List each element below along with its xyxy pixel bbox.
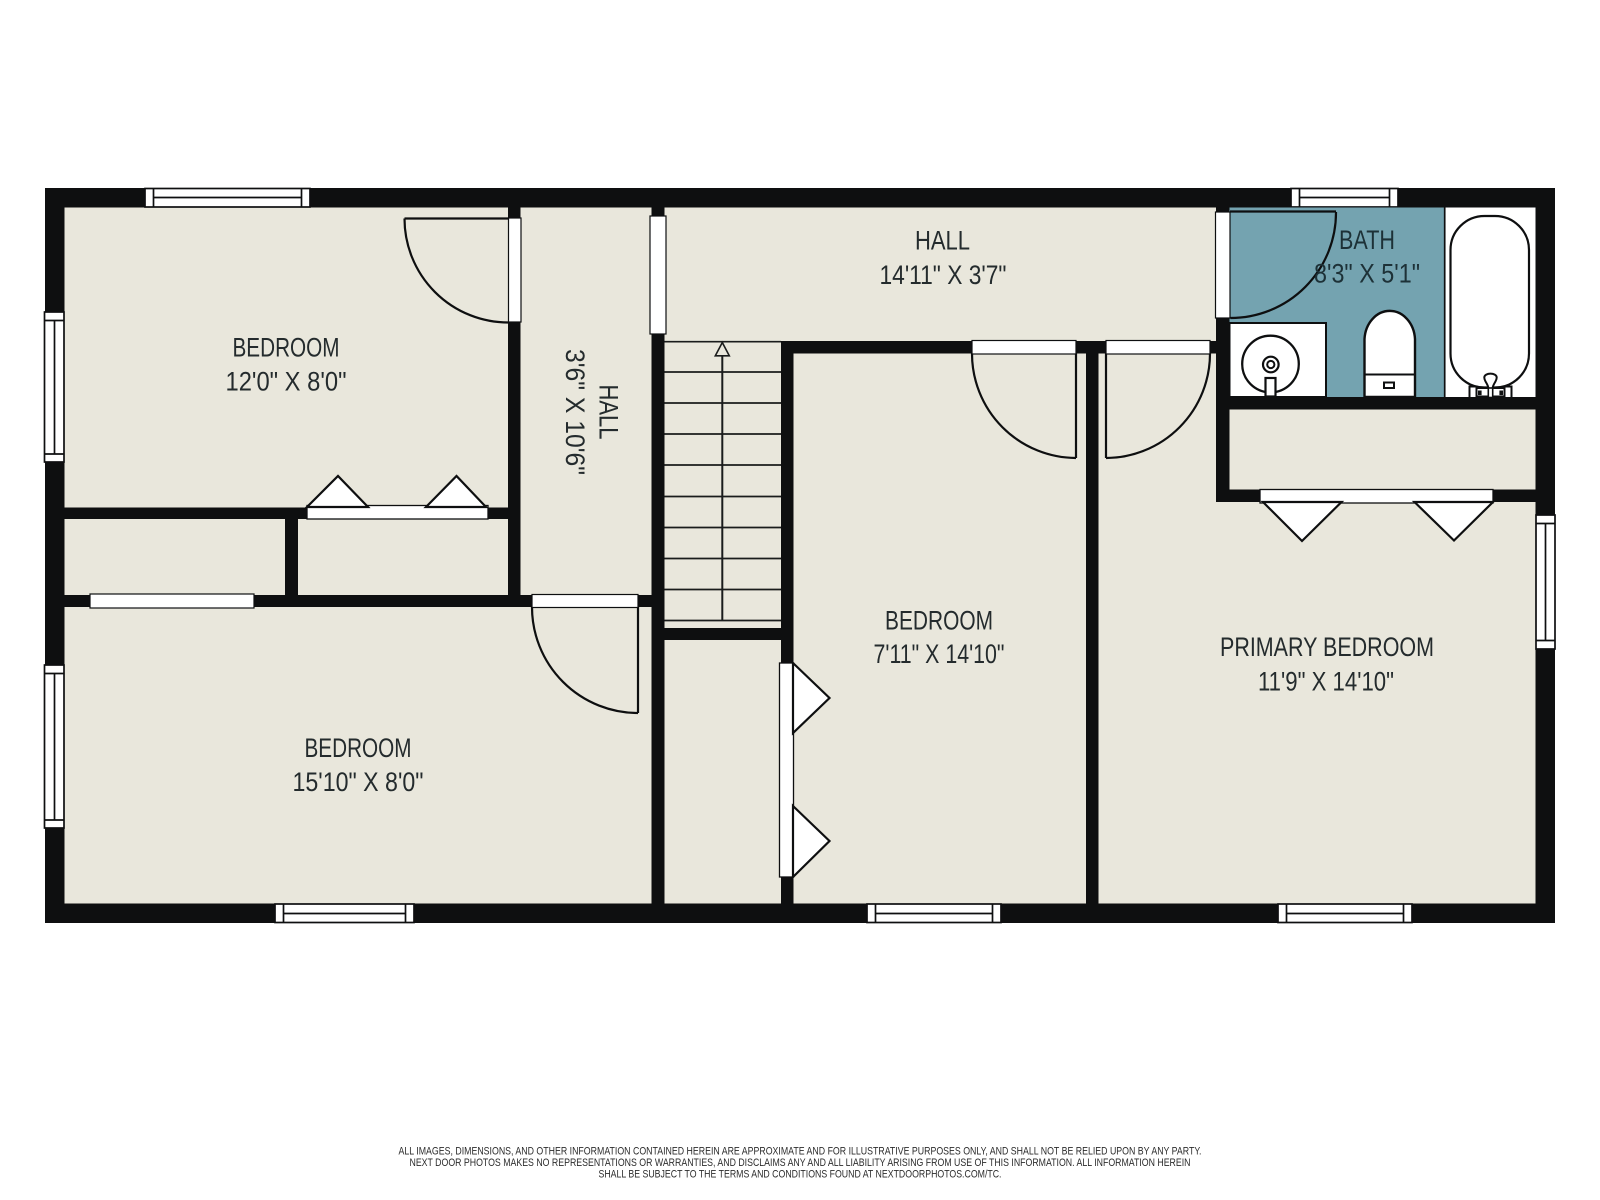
svg-text:3'6" X 10'6": 3'6" X 10'6" xyxy=(560,349,590,475)
svg-text:BEDROOM: BEDROOM xyxy=(885,606,993,636)
svg-text:NEXT DOOR PHOTOS MAKES NO REPR: NEXT DOOR PHOTOS MAKES NO REPRESENTATION… xyxy=(410,1157,1191,1169)
svg-text:SHALL BE SUBJECT TO THE TERMS: SHALL BE SUBJECT TO THE TERMS AND CONDIT… xyxy=(599,1169,1002,1181)
svg-text:BEDROOM: BEDROOM xyxy=(305,733,412,763)
svg-text:14'11" X 3'7": 14'11" X 3'7" xyxy=(880,260,1007,290)
svg-text:BEDROOM: BEDROOM xyxy=(233,333,340,363)
svg-text:ALL IMAGES, DIMENSIONS, AND OT: ALL IMAGES, DIMENSIONS, AND OTHER INFORM… xyxy=(399,1146,1202,1158)
svg-text:8'3" X 5'1": 8'3" X 5'1" xyxy=(1314,259,1420,289)
svg-text:15'10" X 8'0": 15'10" X 8'0" xyxy=(293,767,424,797)
svg-text:11'9" X 14'10": 11'9" X 14'10" xyxy=(1258,667,1394,697)
svg-text:12'0" X 8'0": 12'0" X 8'0" xyxy=(226,367,347,397)
svg-text:7'11" X 14'10": 7'11" X 14'10" xyxy=(874,639,1005,669)
svg-text:HALL: HALL xyxy=(915,226,970,256)
svg-text:BATH: BATH xyxy=(1339,225,1395,255)
svg-text:PRIMARY BEDROOM: PRIMARY BEDROOM xyxy=(1220,632,1434,662)
svg-text:HALL: HALL xyxy=(594,385,624,440)
